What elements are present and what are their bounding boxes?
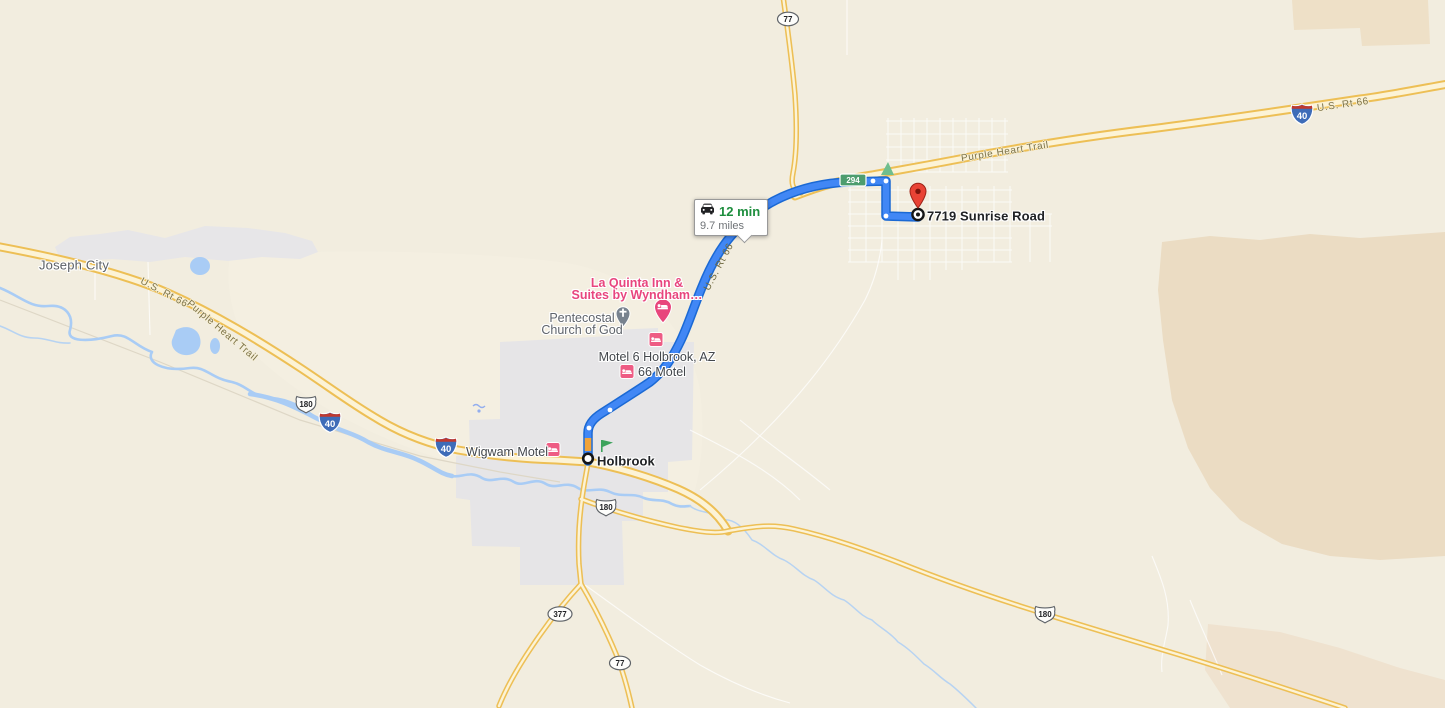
- poi-label-wigwam-motel[interactable]: Wigwam Motel: [466, 446, 548, 458]
- shield-sr377: 377: [547, 606, 574, 623]
- river-branch: [0, 326, 70, 343]
- svg-text:40: 40: [1297, 111, 1308, 122]
- svg-text:180: 180: [1038, 610, 1052, 619]
- shield-us180: 180: [295, 395, 317, 414]
- pond: [190, 257, 210, 275]
- city-label-joseph-city[interactable]: Joseph City: [39, 258, 109, 273]
- car-icon: [700, 202, 715, 220]
- poi-label-motel6[interactable]: Motel 6 Holbrook, AZ: [599, 351, 716, 363]
- pond: [210, 338, 220, 354]
- shield-i40: 40: [1290, 103, 1314, 125]
- route-destination-label[interactable]: 7719 Sunrise Road: [927, 209, 1045, 224]
- road-77-north: [783, 0, 801, 193]
- svg-text:77: 77: [616, 659, 625, 668]
- route-duration: 12 min: [719, 204, 760, 219]
- poi-label-la-quinta[interactable]: La Quinta Inn & Suites by Wyndham…: [571, 277, 702, 301]
- svg-text:180: 180: [599, 503, 613, 512]
- svg-text:40: 40: [325, 419, 336, 430]
- map-base-art: [0, 0, 1445, 708]
- shield-i40: 40: [318, 411, 342, 433]
- shield-sr294: 294: [839, 173, 867, 187]
- map-canvas[interactable]: 40 40 40 180 180 180: [0, 0, 1445, 708]
- shield-sr77: 77: [608, 655, 632, 671]
- hotel-icon-66-motel[interactable]: [620, 364, 635, 384]
- svg-text:77: 77: [784, 15, 793, 24]
- svg-text:180: 180: [299, 400, 313, 409]
- svg-text:377: 377: [553, 610, 567, 619]
- terrain-patches: [228, 0, 1445, 708]
- route-origin-marker[interactable]: [581, 452, 595, 471]
- destination-pin-icon[interactable]: [909, 182, 928, 214]
- shield-sr77: 77: [776, 11, 800, 27]
- poi-label-66-motel[interactable]: 66 Motel: [638, 366, 686, 378]
- route-origin-label[interactable]: Holbrook: [597, 454, 655, 469]
- hotel-icon-motel6[interactable]: [649, 332, 664, 352]
- road-77-south: [581, 584, 632, 708]
- street-grid: [848, 118, 1052, 280]
- svg-text:294: 294: [846, 176, 860, 185]
- shield-i40: 40: [434, 436, 458, 458]
- route-distance: 9.7 miles: [700, 220, 762, 232]
- pond: [172, 327, 201, 355]
- stream: [690, 506, 976, 708]
- svg-text:40: 40: [441, 444, 452, 455]
- shield-us180: 180: [595, 498, 617, 517]
- route-info-tooltip[interactable]: 12 min 9.7 miles: [694, 199, 768, 236]
- poi-label-pentecostal-church[interactable]: Pentecostal Church of God: [541, 312, 622, 336]
- shield-us180: 180: [1034, 605, 1056, 624]
- road-377: [499, 584, 581, 706]
